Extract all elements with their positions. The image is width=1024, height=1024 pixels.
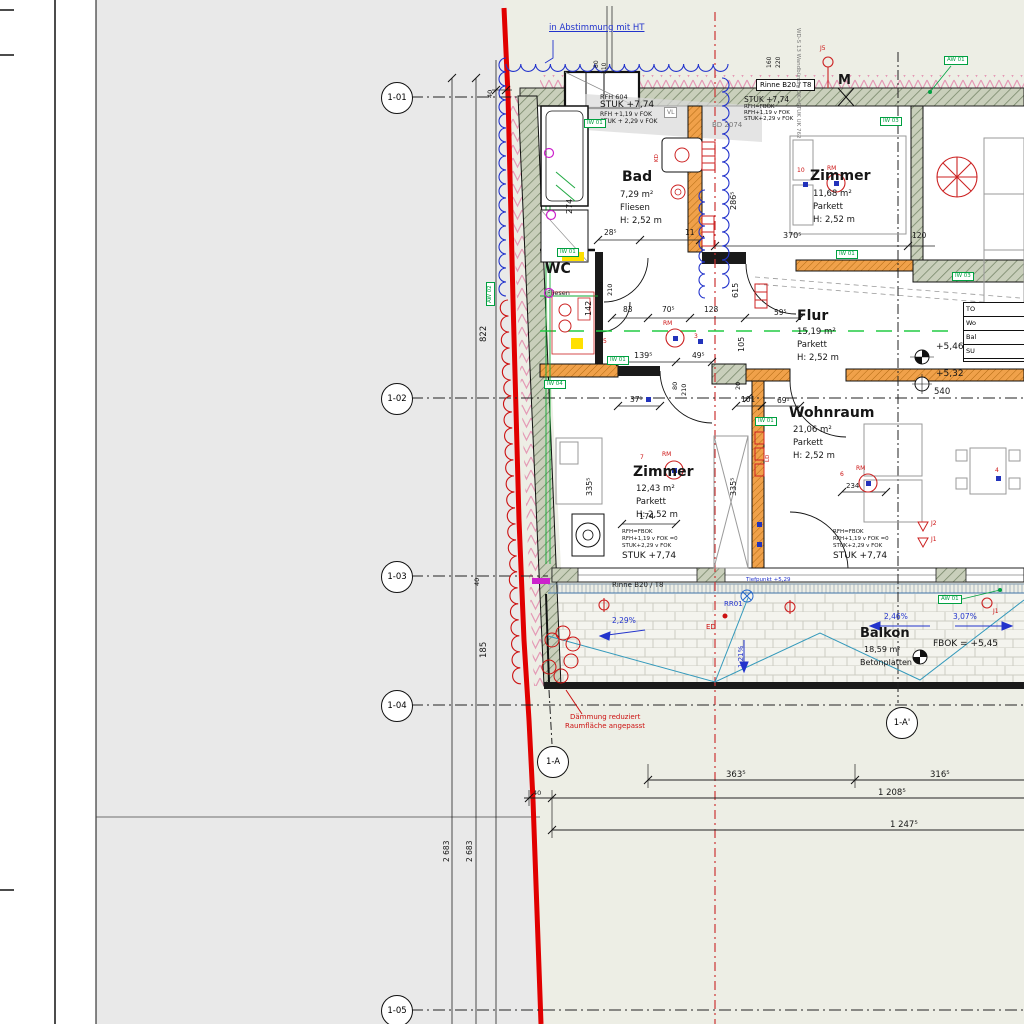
wall-tag-iw03-b: IW 03 bbox=[952, 272, 974, 281]
area-summary-table: TO Wo Bal SU bbox=[963, 302, 1024, 362]
room-height-bad: H: 2,52 m bbox=[620, 217, 662, 226]
room-label-bad: Bad bbox=[622, 170, 652, 184]
dim-2683-b: 2 683 bbox=[466, 841, 474, 862]
room-label-wohnraum: Wohnraum bbox=[789, 406, 874, 420]
stuk-br-3: STUK+2,29 v FOK bbox=[833, 544, 882, 550]
rm-label-zimmer2: RM bbox=[662, 452, 671, 458]
rm-label-wohnraum: RM bbox=[856, 466, 865, 472]
room-label-balkon: Balkon bbox=[860, 627, 910, 640]
wall-tag-iw01-b: IW 01 bbox=[836, 250, 858, 259]
dim-274: 274 bbox=[566, 199, 574, 214]
summary-row-2: Wo bbox=[964, 317, 1024, 331]
elevation-lower: +5,32 bbox=[936, 370, 964, 379]
rr01-label: RR01 bbox=[724, 601, 743, 608]
dim-234: 234 bbox=[846, 483, 859, 490]
dim-822: 822 bbox=[480, 326, 489, 342]
j2-label: J2 bbox=[931, 521, 937, 527]
grid-bubble-1-04: 1-04 bbox=[381, 690, 413, 722]
stuk-br-4: STUK +7,74 bbox=[833, 552, 887, 561]
stuk-br-1: RFH=FBOK bbox=[833, 530, 864, 536]
dim-40-top: 40 bbox=[487, 90, 494, 98]
room-floor-balkon: Betonplatten bbox=[860, 659, 912, 667]
slope-121: 1,21% bbox=[738, 646, 745, 668]
abstimmung-note: in Abstimmung mit HT bbox=[549, 24, 644, 33]
kd-label: KD bbox=[655, 154, 661, 162]
dim-185: 185 bbox=[480, 642, 489, 658]
dim-160: 160 bbox=[767, 57, 773, 68]
grid-bubble-1-A2: 1-A' bbox=[886, 707, 918, 739]
ld-label: LD bbox=[766, 455, 772, 462]
floorplan-canvas: 1-01 1-02 1-03 1-04 1-05 1-A 1-A' Bad 7,… bbox=[0, 0, 1024, 1024]
wall-tag-aw02: AW 02 bbox=[486, 282, 495, 306]
dim-20: 20 bbox=[735, 382, 742, 390]
room-floor-flur: Parkett bbox=[797, 341, 827, 350]
dim-615: 615 bbox=[732, 283, 740, 298]
dim-691: 69¹ bbox=[777, 397, 790, 405]
dim-105: 105 bbox=[738, 337, 746, 352]
dim-210-b: 210 bbox=[607, 284, 614, 296]
wd-note: WD-S 13 Wandbündig OK=STUK UK 762 bbox=[795, 28, 801, 138]
dim-316: 316⁵ bbox=[930, 771, 950, 780]
neighbour-area bbox=[96, 0, 541, 1024]
vl-box: VL bbox=[664, 107, 677, 118]
slope-307: 3,07% bbox=[953, 613, 977, 621]
apartment-interior bbox=[537, 106, 1024, 568]
wall-tag-iw01-a: IW 01 bbox=[584, 119, 606, 128]
num-10: 10 bbox=[797, 168, 805, 174]
dim-142: 142 bbox=[585, 301, 593, 316]
room-height-zimmer1: H: 2,52 m bbox=[813, 216, 855, 225]
dim-210-a: 210 bbox=[602, 63, 608, 74]
dim-3355-a: 335⁵ bbox=[586, 478, 594, 496]
dim-285: 28⁵ bbox=[604, 229, 617, 237]
wall-tag-aw01-balkon: AW 01 bbox=[938, 595, 962, 604]
dim-174: 174 bbox=[639, 513, 654, 521]
dim-220: 220 bbox=[776, 57, 782, 68]
daemmung-note-1: Dämmung reduziert bbox=[570, 714, 640, 721]
room-height-wohnraum: H: 2,52 m bbox=[793, 452, 835, 461]
wall-tag-iw04: IW 04 bbox=[544, 380, 566, 389]
dim-101: 101 bbox=[741, 396, 755, 404]
dim-2865: 286⁵ bbox=[730, 192, 738, 210]
j5-label: J5 bbox=[820, 46, 826, 52]
stuk-right-1: STUK +7,74 bbox=[744, 96, 789, 104]
room-area-wohnraum: 21,06 m² bbox=[793, 426, 832, 435]
grid-bubble-1-05: 1-05 bbox=[381, 995, 413, 1024]
dim-80-a: 80 bbox=[594, 60, 600, 68]
j1-balkon-label: J1 bbox=[993, 609, 999, 615]
grid-bubble-1-A: 1-A bbox=[537, 746, 569, 778]
stuk-top-2: STUK +7,74 bbox=[600, 101, 654, 110]
washing-machine bbox=[572, 514, 604, 556]
bd-label: BD 2074 bbox=[712, 122, 742, 129]
room-label-wc: WC bbox=[545, 262, 571, 276]
wall-tag-iw03-a: IW 03 bbox=[880, 117, 902, 126]
dim-40-bottom: 40 bbox=[533, 790, 541, 797]
num-4: 4 bbox=[995, 468, 999, 474]
tiefpunkt-label: Tiefpunkt +5,29 bbox=[746, 578, 790, 584]
stuk-bl-1: RFH=FBOK bbox=[622, 530, 653, 536]
wall-tag-aw01-top: AW 01 bbox=[944, 56, 968, 65]
room-label-flur: Flur bbox=[797, 309, 828, 323]
dim-705: 70⁵ bbox=[662, 306, 675, 314]
dim-540: 540 bbox=[934, 388, 950, 397]
rinne-bottom-label: Rinne B20 / T8 bbox=[612, 582, 663, 589]
dim-3705: 370⁵ bbox=[783, 232, 801, 240]
dim-210-c: 210 bbox=[681, 384, 688, 396]
room-area-balkon: 18,59 m² bbox=[864, 646, 900, 654]
room-floor-bad: Fliesen bbox=[620, 204, 650, 213]
summary-row-4: SU bbox=[964, 345, 1024, 359]
room-height-flur: H: 2,52 m bbox=[797, 354, 839, 363]
washbasin bbox=[662, 138, 702, 172]
dim-83: 83 bbox=[623, 306, 633, 314]
dim-11: 11 bbox=[685, 229, 695, 237]
m-marker: M bbox=[838, 74, 851, 87]
room-floor-zimmer2: Parkett bbox=[636, 498, 666, 507]
dim-80-b: 80 bbox=[598, 282, 605, 290]
room-floor-wc: Fliesen bbox=[547, 290, 570, 297]
rinne-top-box: Rinne B20 / T8 bbox=[756, 79, 815, 91]
room-area-bad: 7,29 m² bbox=[620, 191, 653, 200]
num-7: 7 bbox=[640, 455, 644, 461]
dim-363: 363⁵ bbox=[726, 771, 746, 780]
summary-row-1: TO bbox=[964, 303, 1024, 317]
grid-bubble-1-01: 1-01 bbox=[381, 82, 413, 114]
dim-80-c: 80 bbox=[672, 382, 679, 390]
daemmung-note-2: Raumfläche angepasst bbox=[565, 723, 645, 730]
stuk-br-2: RFH+1,19 v FOK =0 bbox=[833, 537, 889, 543]
dim-3355-b: 335⁵ bbox=[730, 478, 738, 496]
dim-40-mid: 40 bbox=[474, 578, 481, 586]
rm-label-zimmer1: RM bbox=[827, 166, 836, 172]
dim-1395: 139⁵ bbox=[634, 352, 652, 360]
grid-bubble-1-03: 1-03 bbox=[381, 561, 413, 593]
dim-2683-a: 2 683 bbox=[443, 841, 451, 862]
dim-495: 49⁵ bbox=[692, 352, 705, 360]
room-area-zimmer2: 12,43 m² bbox=[636, 485, 675, 494]
dim-1208: 1 208⁵ bbox=[878, 789, 906, 798]
rm-label-bad: RM bbox=[663, 321, 672, 327]
wall-tag-iw01-c: IW 01 bbox=[607, 356, 629, 365]
plan-linework bbox=[0, 0, 1024, 1024]
bathtub bbox=[541, 106, 588, 206]
dim-371: 37¹ bbox=[630, 396, 643, 404]
room-area-flur: 15,19 m² bbox=[797, 328, 836, 337]
room-area-zimmer1: 11,68 m² bbox=[813, 190, 852, 199]
stuk-right-4: STUK+2,29 v FOK bbox=[744, 117, 793, 123]
slope-246: 2,46% bbox=[884, 613, 908, 621]
dim-120: 120 bbox=[912, 232, 926, 240]
j1-label: J1 bbox=[931, 537, 937, 543]
balcony-edge bbox=[544, 682, 1024, 689]
dim-128: 128 bbox=[704, 306, 718, 314]
num-3: 3 bbox=[694, 334, 698, 340]
elevation-upper: +5,46 bbox=[936, 343, 964, 352]
dim-595: 59⁵ bbox=[774, 309, 787, 317]
summary-row-3: Bal bbox=[964, 331, 1024, 345]
dim-1247: 1 247⁵ bbox=[890, 821, 918, 830]
room-floor-wohnraum: Parkett bbox=[793, 439, 823, 448]
room-label-zimmer1: Zimmer bbox=[810, 169, 871, 183]
num-5: 5 bbox=[603, 339, 607, 345]
stuk-bl-2: RFH+1,19 v FOK =0 bbox=[622, 537, 678, 543]
stuk-bl-3: STUK+2,29 v FOK bbox=[622, 544, 671, 550]
slope-229: 2,29% bbox=[612, 617, 636, 625]
balkon-fbok: FBOK = +5,45 bbox=[933, 640, 998, 649]
stuk-top-4: STUK + 2,29 v FOK bbox=[600, 119, 657, 125]
wall-tag-iw01-e: IW 01 bbox=[557, 248, 579, 257]
ed-label: ED bbox=[706, 624, 716, 631]
grid-bubble-1-02: 1-02 bbox=[381, 383, 413, 415]
room-label-zimmer2: Zimmer bbox=[633, 465, 694, 479]
wall-tag-iw01-d: IW 01 bbox=[755, 417, 777, 426]
stuk-bl-4: STUK +7,74 bbox=[622, 552, 676, 561]
num-6: 6 bbox=[840, 472, 844, 478]
room-floor-zimmer1: Parkett bbox=[813, 203, 843, 212]
